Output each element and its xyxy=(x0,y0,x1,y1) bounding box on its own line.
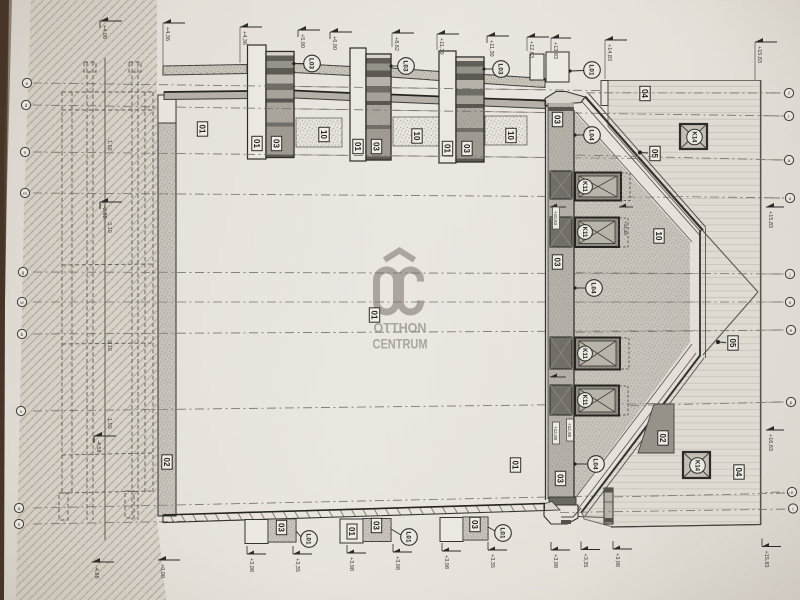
svg-text:01: 01 xyxy=(347,527,356,536)
svg-text:05: 05 xyxy=(728,339,737,348)
svg-text:CENTRUM: CENTRUM xyxy=(373,337,428,352)
svg-text:1,50: 1,50 xyxy=(106,140,112,151)
svg-text:03: 03 xyxy=(553,115,562,124)
svg-text:10: 10 xyxy=(506,131,515,140)
svg-text:L01: L01 xyxy=(499,527,506,538)
svg-text:+15,83: +15,83 xyxy=(763,551,769,568)
svg-text:+3,35: +3,35 xyxy=(294,558,300,572)
svg-text:L04: L04 xyxy=(590,282,597,293)
svg-text:-2,88: -2,88 xyxy=(101,206,107,219)
svg-text:+12,08: +12,08 xyxy=(553,426,558,441)
svg-text:01: 01 xyxy=(370,311,379,320)
svg-text:p: p xyxy=(790,401,793,406)
svg-text:02: 02 xyxy=(658,434,667,443)
svg-text:e: e xyxy=(26,82,29,87)
svg-text:+3,98: +3,98 xyxy=(614,553,620,567)
svg-text:03: 03 xyxy=(277,523,286,532)
svg-text:+11,30: +11,30 xyxy=(488,40,494,57)
svg-text:L01: L01 xyxy=(588,64,595,75)
svg-text:m: m xyxy=(23,192,27,197)
svg-text:+3,35: +3,35 xyxy=(489,554,495,568)
svg-text:K14: K14 xyxy=(690,131,696,143)
svg-text:03: 03 xyxy=(372,521,381,530)
svg-text:+15,83: +15,83 xyxy=(767,211,773,228)
svg-text:03: 03 xyxy=(553,258,562,267)
svg-text:+11,30: +11,30 xyxy=(438,38,444,55)
svg-text:+15,83: +15,83 xyxy=(756,46,762,63)
svg-text:04: 04 xyxy=(640,89,649,98)
svg-text:L03: L03 xyxy=(308,58,315,69)
svg-text:-4,88: -4,88 xyxy=(93,566,99,579)
svg-text:1,50: 1,50 xyxy=(106,418,112,429)
svg-text:-4,58: -4,58 xyxy=(95,440,101,453)
svg-text:10: 10 xyxy=(654,232,663,241)
svg-text:03: 03 xyxy=(470,520,479,529)
svg-text:K11: K11 xyxy=(581,348,587,359)
svg-text:K14: K14 xyxy=(693,460,699,472)
svg-text:+4,08: +4,08 xyxy=(101,25,107,39)
svg-text:04: 04 xyxy=(734,468,743,477)
svg-text:+5,90: +5,90 xyxy=(299,34,305,48)
svg-text:e: e xyxy=(791,491,794,496)
svg-text:d: d xyxy=(25,103,28,109)
svg-text:01: 01 xyxy=(511,461,520,470)
svg-text:03: 03 xyxy=(372,142,381,151)
svg-text:10: 10 xyxy=(412,132,421,141)
svg-text:03: 03 xyxy=(556,474,565,483)
svg-text:L01: L01 xyxy=(405,531,412,542)
svg-text:+3,98: +3,98 xyxy=(348,557,354,571)
svg-text:03: 03 xyxy=(272,139,281,148)
svg-text:+10,63: +10,63 xyxy=(553,211,558,226)
svg-text:3,10: 3,10 xyxy=(106,222,112,233)
svg-text:+3,35: +3,35 xyxy=(582,554,588,568)
svg-text:j: j xyxy=(788,272,790,278)
svg-text:+16,63: +16,63 xyxy=(767,434,773,451)
svg-text:K11: K11 xyxy=(581,395,587,406)
svg-text:L04: L04 xyxy=(588,129,595,140)
svg-text:+13,83: +13,83 xyxy=(552,42,558,59)
svg-text:03: 03 xyxy=(462,144,471,153)
svg-text:+3,98: +3,98 xyxy=(552,554,558,568)
svg-text:+3,98: +3,98 xyxy=(394,556,400,570)
svg-text:L03: L03 xyxy=(402,60,409,71)
svg-text:01: 01 xyxy=(443,144,452,153)
svg-text:+0,00: +0,00 xyxy=(159,564,165,578)
svg-text:+12,98: +12,98 xyxy=(567,423,572,438)
svg-text:a: a xyxy=(788,159,791,164)
svg-text:K11: K11 xyxy=(581,227,587,238)
svg-text:+12,63: +12,63 xyxy=(528,41,534,58)
svg-text:+6,90: +6,90 xyxy=(331,36,337,50)
svg-text:01: 01 xyxy=(353,142,362,151)
svg-text:10: 10 xyxy=(319,130,328,139)
svg-text:K11: K11 xyxy=(581,181,587,192)
svg-text:u: u xyxy=(789,197,792,202)
svg-text:01: 01 xyxy=(252,139,261,148)
svg-text:L03: L03 xyxy=(497,63,504,74)
svg-text:OTTHON: OTTHON xyxy=(374,321,427,336)
svg-text:+11,40: +11,40 xyxy=(623,221,628,235)
svg-text:02: 02 xyxy=(162,458,171,467)
svg-text:b: b xyxy=(21,332,24,338)
svg-text:g: g xyxy=(22,271,25,276)
svg-text:w: w xyxy=(20,301,24,306)
svg-text:a: a xyxy=(18,507,21,512)
svg-text:e: e xyxy=(790,329,793,334)
svg-text:+14,83: +14,83 xyxy=(606,44,612,61)
svg-text:+3,98: +3,98 xyxy=(443,555,449,569)
svg-text:+4,36: +4,36 xyxy=(241,31,247,45)
svg-text:n: n xyxy=(24,151,27,156)
svg-text:+8,62: +8,62 xyxy=(393,37,399,51)
svg-text:01: 01 xyxy=(198,125,207,134)
svg-text:3,10: 3,10 xyxy=(106,340,112,351)
svg-text:+3,98: +3,98 xyxy=(248,558,254,572)
svg-text:L04: L04 xyxy=(592,458,599,469)
svg-text:L01: L01 xyxy=(305,533,312,544)
svg-text:+4,36: +4,36 xyxy=(164,27,170,41)
